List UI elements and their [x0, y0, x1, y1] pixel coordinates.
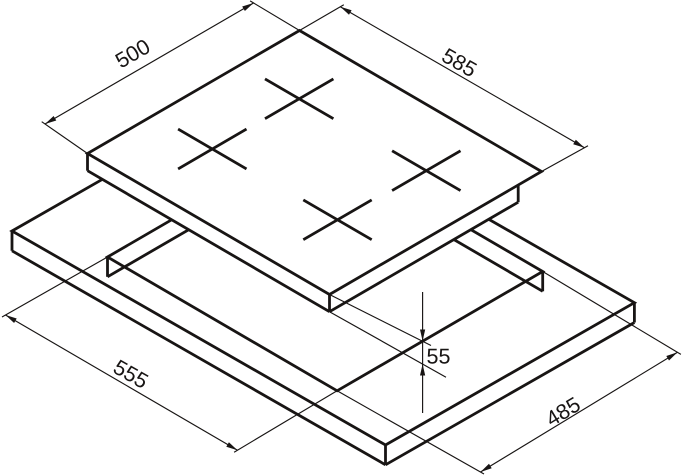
svg-text:485: 485 [542, 392, 585, 431]
svg-text:500: 500 [111, 34, 154, 73]
svg-text:585: 585 [438, 43, 481, 82]
svg-text:55: 55 [427, 345, 451, 369]
svg-text:555: 555 [109, 355, 152, 394]
